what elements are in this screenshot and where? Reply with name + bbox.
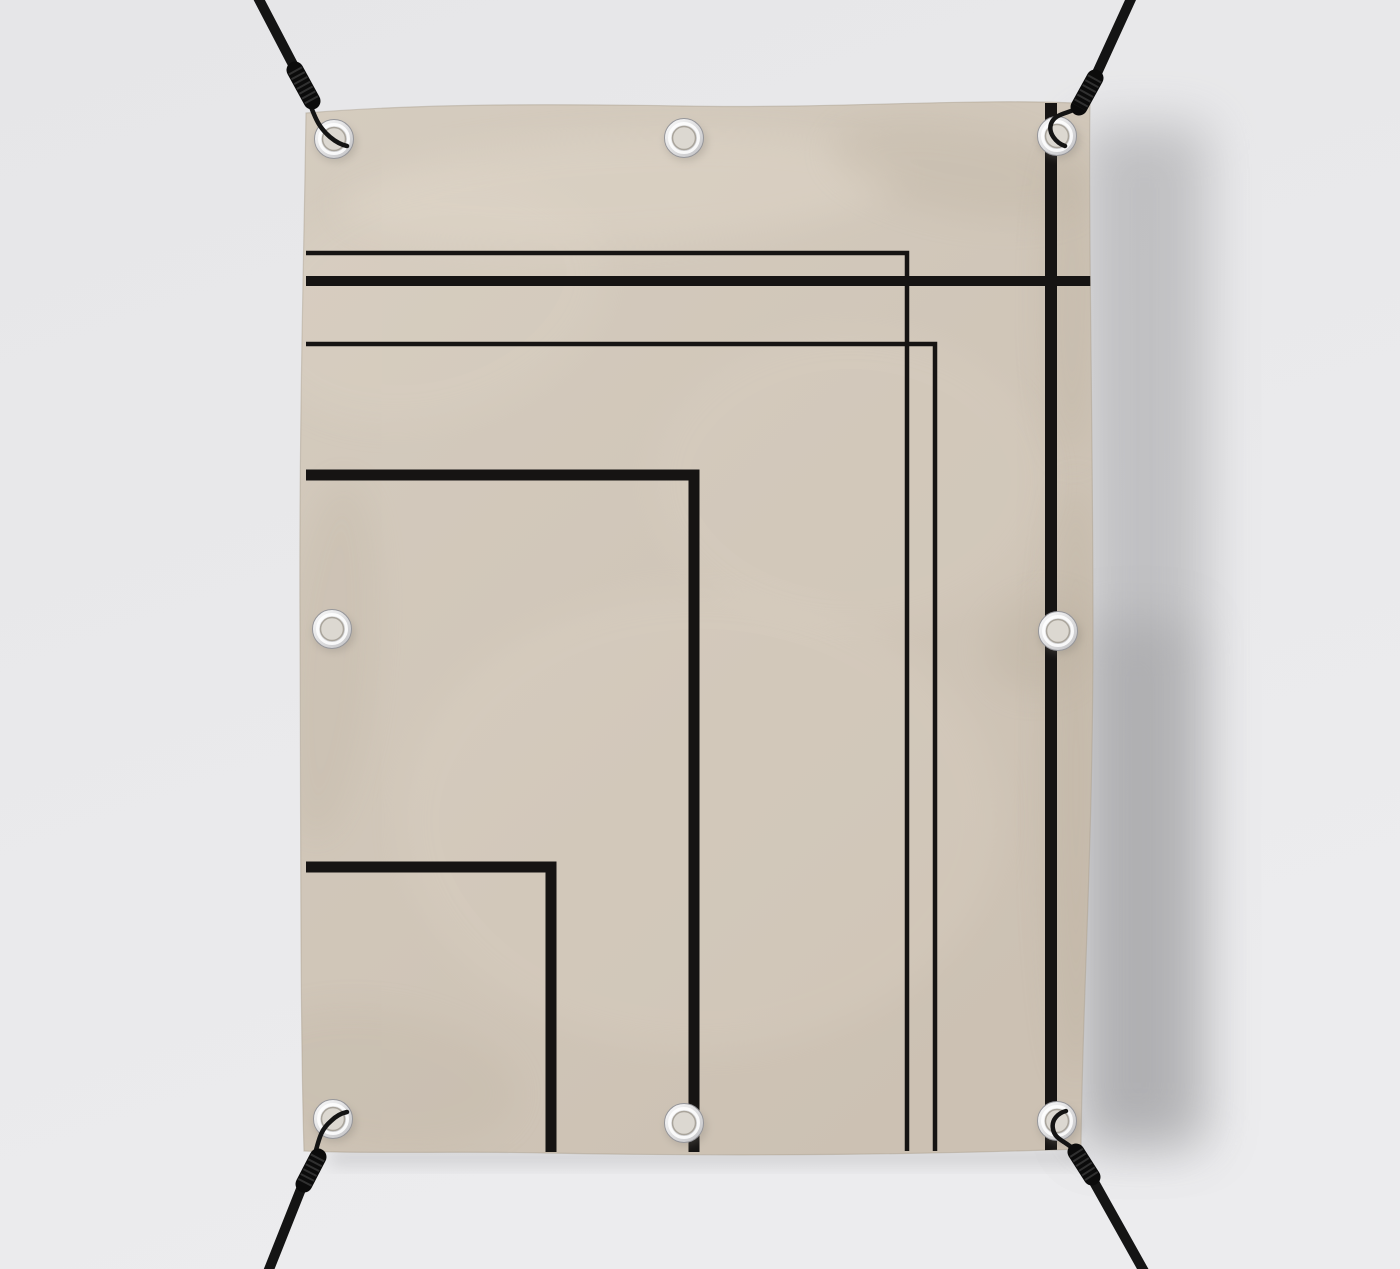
- grommet-hole: [673, 1112, 696, 1135]
- grommet-hole: [673, 127, 696, 150]
- grommet-hole: [321, 618, 344, 641]
- grommet-hole: [1047, 620, 1070, 643]
- mockup-render: [0, 0, 1400, 1269]
- banner-mockup-scene: [0, 0, 1400, 1269]
- wrinkle-highlight: [400, 590, 1000, 1050]
- wall-shadow-patch: [1082, 620, 1192, 1145]
- wrinkle-highlight: [650, 330, 1050, 630]
